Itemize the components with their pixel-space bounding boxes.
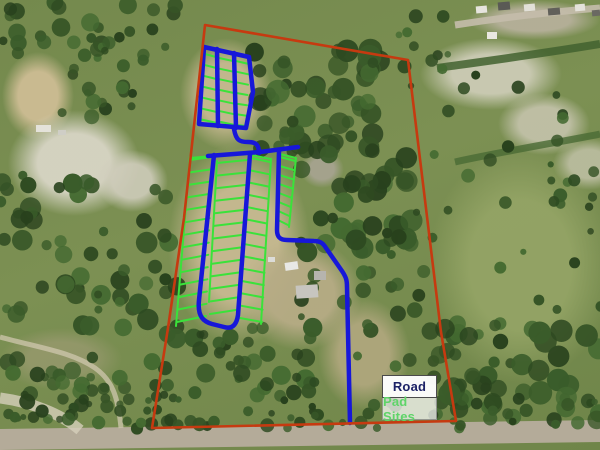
tree: [86, 373, 95, 382]
tree: [596, 301, 600, 312]
building: [314, 271, 326, 280]
tree: [98, 383, 110, 395]
tree: [99, 227, 108, 236]
pad-edge-line: [251, 155, 271, 324]
tree: [430, 150, 439, 159]
tree: [592, 399, 598, 405]
pad-site-line: [279, 202, 290, 207]
tree: [445, 51, 452, 58]
tree: [442, 105, 455, 118]
tree: [502, 408, 513, 419]
tree: [509, 418, 516, 425]
tree: [37, 35, 51, 49]
pad-site-line: [242, 293, 264, 297]
tree: [116, 401, 123, 408]
tree: [100, 400, 113, 413]
pad-site-line: [214, 235, 242, 239]
legend-road-label: Road: [393, 379, 426, 394]
tree: [425, 54, 438, 67]
tree: [575, 324, 598, 347]
building: [575, 4, 586, 12]
pad-site-line: [246, 232, 266, 236]
tree: [368, 58, 379, 69]
road-u-loop: [199, 154, 250, 328]
tree: [42, 240, 52, 250]
tree: [489, 357, 500, 368]
pad-site-line: [245, 244, 266, 248]
tree: [101, 47, 109, 55]
building: [268, 257, 275, 262]
pad-site-line: [279, 175, 293, 179]
pad-site-line: [237, 114, 247, 115]
tree: [287, 116, 299, 128]
tree: [266, 80, 290, 104]
pad-site-line: [250, 170, 269, 174]
tree: [304, 332, 316, 344]
tree: [363, 216, 383, 236]
pad-site-line: [213, 248, 241, 252]
tree: [391, 278, 404, 291]
building: [58, 130, 66, 135]
tree: [260, 377, 274, 391]
tree: [587, 228, 594, 235]
tree: [569, 257, 580, 268]
pad-site-line: [278, 211, 289, 216]
tree: [260, 346, 276, 362]
tree: [94, 306, 102, 314]
tree: [62, 412, 75, 425]
tree: [123, 394, 135, 406]
tree: [280, 396, 288, 404]
pad-site-line: [217, 160, 247, 163]
tree: [114, 319, 132, 337]
tree: [247, 323, 258, 334]
tree: [137, 309, 158, 330]
tree: [12, 230, 33, 251]
tree: [0, 37, 8, 46]
tree: [353, 352, 362, 361]
pad-site-line: [220, 101, 234, 104]
tree: [7, 305, 25, 323]
pad-site-line: [249, 183, 268, 187]
tree: [87, 352, 98, 363]
tree: [553, 91, 561, 99]
tree: [292, 349, 304, 361]
tree: [358, 186, 375, 203]
tree: [253, 64, 266, 77]
pad-site-line: [278, 220, 288, 225]
building: [498, 1, 511, 10]
tree: [268, 410, 275, 417]
map-overlay: [0, 0, 600, 450]
tree: [334, 192, 354, 212]
tree: [362, 319, 373, 330]
tree: [107, 248, 118, 259]
tree: [139, 276, 153, 290]
tree: [143, 407, 151, 415]
tree: [292, 373, 301, 382]
tree: [345, 130, 357, 142]
pad-site-line: [200, 108, 217, 112]
tree: [332, 78, 355, 101]
tree: [20, 211, 33, 224]
tree: [81, 13, 99, 31]
tree: [175, 396, 181, 402]
pad-site-line: [216, 185, 245, 188]
tree: [298, 313, 305, 320]
tree: [86, 33, 96, 43]
tree: [136, 232, 158, 254]
building: [487, 32, 497, 39]
tree: [553, 305, 562, 314]
legend-pad-sites-label: Pad Sites: [383, 394, 436, 424]
pad-site-line: [189, 169, 212, 172]
pad-site-line: [215, 198, 244, 201]
pad-site-line: [240, 318, 262, 322]
tree: [161, 379, 174, 392]
tree: [20, 177, 36, 193]
tree: [409, 41, 419, 51]
tree: [157, 229, 171, 243]
tree: [79, 174, 95, 190]
tree: [520, 404, 533, 417]
tree: [112, 370, 128, 386]
tree: [54, 182, 65, 193]
tree: [417, 265, 430, 278]
pad-site-line: [220, 90, 234, 93]
tree: [534, 295, 545, 306]
tree: [67, 36, 81, 50]
tree: [57, 393, 68, 404]
tree: [382, 228, 392, 238]
pad-site-line: [249, 195, 269, 199]
tree: [513, 393, 525, 405]
tree: [145, 397, 152, 404]
tree: [78, 49, 91, 62]
tree: [568, 174, 580, 186]
tree: [413, 209, 420, 216]
pad-site-line: [237, 93, 248, 95]
tree: [493, 334, 508, 349]
tree: [528, 360, 549, 381]
tree: [51, 0, 66, 15]
tree: [4, 2, 17, 15]
tree: [360, 94, 376, 110]
building: [524, 4, 536, 12]
tree: [114, 32, 125, 43]
pad-site-line: [220, 79, 234, 82]
tree: [547, 177, 555, 185]
tree: [136, 213, 152, 229]
hedgerow: [437, 44, 600, 68]
tree: [373, 424, 381, 432]
tree: [412, 289, 425, 302]
tree: [512, 81, 525, 94]
tree: [557, 112, 569, 124]
tree: [343, 175, 361, 193]
tree: [287, 414, 294, 421]
tree: [199, 330, 208, 339]
pad-site-line: [214, 223, 242, 226]
tree: [407, 302, 423, 318]
pad-site-line: [216, 173, 246, 176]
tree: [488, 406, 498, 416]
tree: [272, 366, 291, 385]
tree: [387, 250, 396, 259]
tree: [327, 213, 338, 224]
tree: [147, 24, 159, 36]
tree: [20, 414, 26, 420]
tree: [548, 161, 554, 167]
tree: [520, 249, 526, 255]
tree: [117, 59, 130, 72]
tree: [12, 47, 24, 59]
tree: [243, 406, 253, 416]
tree: [148, 260, 162, 274]
pad-site-line: [212, 273, 239, 277]
tree: [588, 192, 597, 201]
tree: [458, 82, 470, 94]
pad-site-line: [178, 304, 207, 310]
tree: [499, 196, 512, 209]
building: [592, 10, 600, 17]
pad-site-line: [241, 306, 263, 310]
tree: [471, 71, 480, 80]
tree: [128, 89, 137, 98]
road-line: [217, 49, 218, 126]
tree: [161, 43, 169, 51]
tree: [278, 56, 291, 69]
building: [476, 6, 488, 14]
tree: [396, 32, 403, 39]
tree: [36, 405, 49, 418]
tree: [69, 64, 79, 74]
tree: [528, 322, 551, 345]
tree: [356, 283, 371, 298]
tree: [551, 420, 560, 429]
tree: [158, 190, 173, 205]
tree: [456, 393, 469, 406]
road-line: [234, 53, 236, 128]
tree: [116, 81, 129, 94]
pad-site-line: [236, 61, 249, 64]
legend: Road Pad Sites: [382, 375, 437, 420]
tree: [193, 417, 207, 431]
tree: [494, 262, 506, 274]
tree: [168, 277, 186, 295]
tree: [55, 235, 67, 247]
tree: [435, 319, 455, 339]
tree: [403, 353, 417, 367]
tree: [84, 109, 99, 124]
pad-site-line: [280, 166, 294, 170]
tree: [397, 172, 414, 189]
pad-site-line: [211, 298, 237, 302]
tree: [390, 306, 406, 322]
tree: [58, 108, 67, 117]
tree: [329, 112, 351, 134]
tree: [346, 230, 367, 251]
tree: [86, 401, 92, 407]
tree: [256, 322, 268, 334]
pad-site-line: [243, 269, 264, 273]
tree: [55, 375, 70, 390]
tree: [390, 360, 402, 372]
tree: [55, 246, 72, 263]
tree: [214, 347, 225, 358]
tree: [30, 367, 45, 382]
tree: [409, 9, 423, 23]
tree: [233, 355, 244, 366]
pad-site-line: [201, 97, 217, 101]
tree: [571, 416, 584, 429]
tree: [57, 276, 74, 293]
tree: [502, 140, 514, 152]
tree: [250, 387, 265, 402]
tree: [437, 64, 447, 74]
tree: [391, 229, 406, 244]
tree: [549, 196, 560, 207]
tree: [305, 78, 325, 98]
pad-site-line: [243, 281, 264, 285]
pad-site-line: [188, 182, 211, 185]
pad-site-line: [202, 87, 217, 91]
tree: [489, 320, 501, 332]
tree: [188, 386, 201, 399]
pad-site-line: [187, 194, 211, 198]
tree: [464, 368, 480, 384]
tree: [92, 416, 105, 429]
tree: [444, 206, 453, 215]
tree: [402, 27, 412, 37]
tree: [84, 247, 99, 262]
tree: [311, 412, 319, 420]
tree: [309, 377, 319, 387]
pad-site-line: [211, 285, 238, 289]
tree: [356, 265, 371, 280]
tree: [551, 135, 563, 147]
tree: [368, 399, 380, 411]
tree: [118, 264, 130, 276]
pad-site-line: [279, 184, 292, 188]
tree: [257, 115, 273, 131]
tree: [313, 210, 329, 226]
tree: [365, 143, 380, 158]
tree: [471, 398, 483, 410]
tree: [480, 383, 490, 393]
tree: [10, 412, 21, 423]
tree: [128, 102, 136, 110]
building: [36, 125, 51, 132]
tree: [222, 329, 238, 345]
building: [296, 284, 319, 299]
tree-canopy-group: [0, 0, 600, 435]
legend-item-pad-sites: Pad Sites: [382, 398, 437, 420]
pad-site-line: [244, 257, 265, 261]
tree: [5, 365, 21, 381]
tree: [122, 417, 131, 426]
pad-site-line: [237, 104, 247, 106]
aerial-property-map: Road Pad Sites: [0, 0, 600, 450]
pad-site-line: [236, 82, 248, 84]
tree: [460, 327, 478, 345]
tree: [461, 169, 475, 183]
pad-site-line: [203, 76, 216, 79]
tree: [320, 145, 338, 163]
tree: [192, 341, 208, 357]
hedgerow: [455, 134, 600, 162]
tree: [233, 365, 250, 382]
tree: [588, 166, 599, 177]
pad-site-line: [279, 193, 291, 198]
tree: [291, 81, 308, 98]
tree: [84, 89, 91, 96]
pad-site-line: [212, 260, 239, 264]
pad-site-line: [236, 72, 248, 75]
tree: [52, 18, 71, 37]
tree: [297, 242, 317, 262]
tree: [8, 24, 26, 42]
pad-site-line: [215, 210, 244, 213]
tree: [138, 55, 149, 66]
tree: [21, 391, 29, 399]
pad-site-line: [205, 54, 216, 57]
tree: [0, 196, 6, 207]
tree: [309, 403, 316, 410]
tree: [136, 418, 146, 428]
tree: [396, 147, 417, 168]
tree: [294, 417, 305, 428]
tree: [484, 153, 497, 166]
pad-site-line: [247, 220, 267, 224]
tree: [94, 291, 102, 299]
pad-site-line: [210, 310, 236, 314]
tree: [115, 297, 125, 307]
tree: [144, 353, 161, 370]
tree: [80, 316, 99, 335]
tree: [36, 281, 49, 294]
tree: [585, 203, 593, 211]
tree: [243, 337, 254, 348]
tree: [561, 398, 574, 411]
pad-site-line: [219, 69, 233, 72]
pad-site-line: [248, 207, 268, 211]
tree: [286, 385, 301, 400]
tree: [437, 10, 450, 23]
building: [285, 261, 299, 271]
tree: [147, 3, 160, 16]
tree: [196, 364, 215, 383]
tree: [124, 26, 135, 37]
pad-site-line: [219, 58, 233, 61]
pad-site-line: [204, 65, 216, 68]
building: [548, 7, 561, 15]
tree: [119, 0, 137, 14]
pad-site-line: [221, 111, 235, 114]
tree: [0, 233, 11, 246]
